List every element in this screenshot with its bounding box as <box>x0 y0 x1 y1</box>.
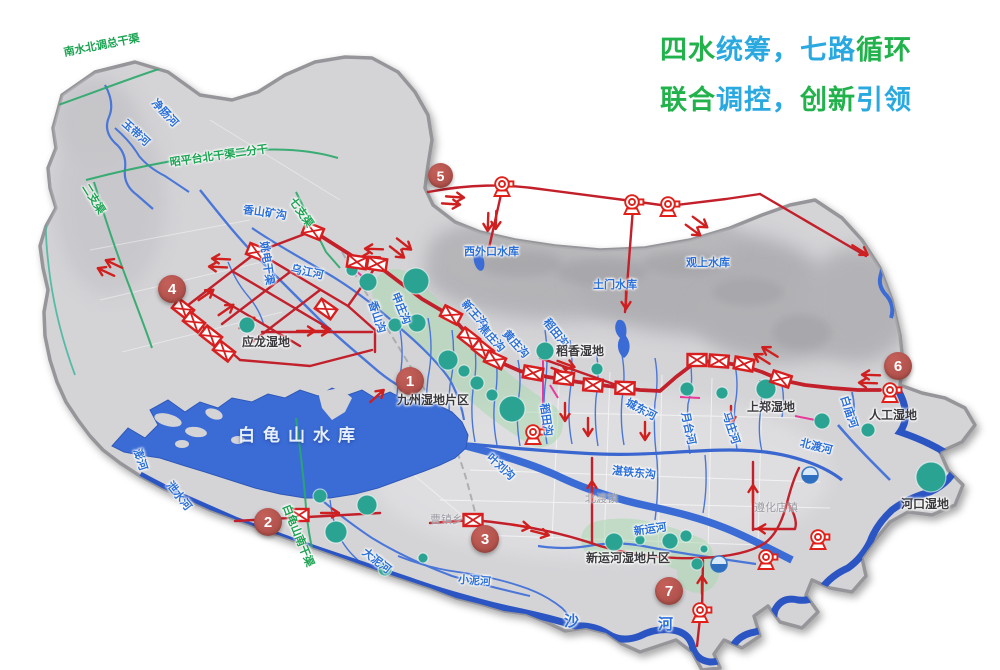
town-label: 曹镇乡 <box>430 515 463 526</box>
map-title: 四水统筹，七路循环 联合调控，创新引领 <box>660 26 912 126</box>
town-label: 遵化店镇 <box>754 503 798 514</box>
title-seg: 联合 <box>660 85 716 115</box>
river-label: 小泥河 <box>458 575 492 588</box>
route-marker-2: 2 <box>254 508 282 536</box>
title-seg: 引领 <box>856 85 912 115</box>
title-seg: 七路 <box>800 35 856 65</box>
water-system-map: 四水统筹，七路循环 联合调控，创新引领 1 2 3 4 5 6 7 南水北调总干… <box>0 0 1000 670</box>
river-label: 河 <box>658 617 673 632</box>
reservoir-label: 土门水库 <box>593 280 637 291</box>
wetland-label: 河口湿地 <box>901 498 949 510</box>
wetland-label: 新运河湿地片区 <box>586 552 670 564</box>
title-seg: 调控， <box>716 85 800 115</box>
wetland-label: 九州湿地片区 <box>397 394 469 406</box>
title-seg: 四水 <box>660 35 716 65</box>
route-marker-6: 6 <box>884 352 912 380</box>
wetland-label: 稻香湿地 <box>556 345 604 357</box>
title-seg: 创新 <box>800 85 856 115</box>
reservoir-label: 观上水库 <box>686 258 730 269</box>
wetland-label: 上郑湿地 <box>747 401 795 413</box>
route-marker-1: 1 <box>396 367 424 395</box>
title-seg: 循环 <box>856 35 912 65</box>
route-marker-3: 3 <box>471 525 499 553</box>
route-marker-4: 4 <box>158 275 186 303</box>
route-marker-5: 5 <box>428 163 453 188</box>
plant-icon <box>711 556 727 572</box>
reservoir-label: 西外口水库 <box>464 247 519 258</box>
reservoir-label: 白龟山水库 <box>238 427 363 444</box>
title-seg: 统筹， <box>716 35 800 65</box>
map-title-line1: 四水统筹，七路循环 <box>660 26 912 76</box>
wetland-label: 应龙湿地 <box>242 336 290 348</box>
river-label: 沙 <box>564 614 579 629</box>
town-label: 北渡镇 <box>585 494 618 505</box>
plant-icon <box>802 467 818 483</box>
map-title-line2: 联合调控，创新引领 <box>660 76 912 126</box>
wetland-label: 人工湿地 <box>869 409 917 421</box>
route-marker-7: 7 <box>655 577 683 605</box>
